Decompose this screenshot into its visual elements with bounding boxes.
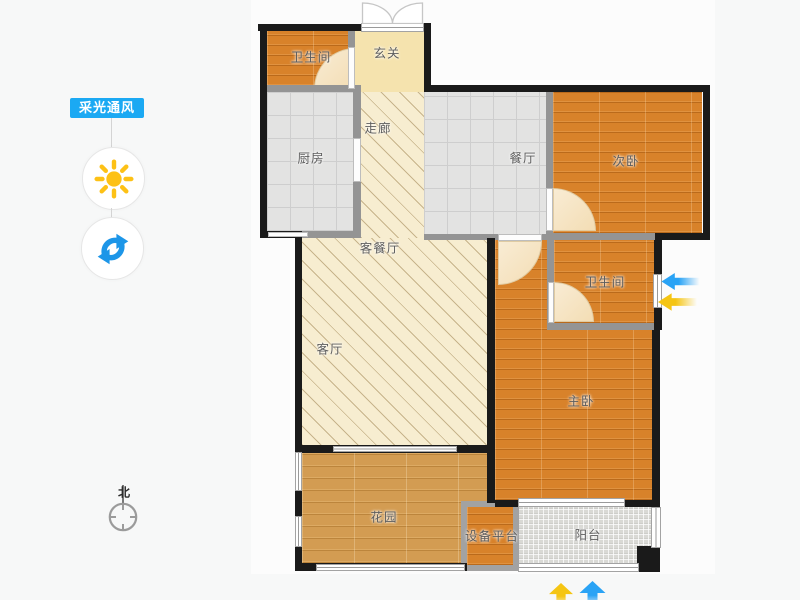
- room-label-kitchen: 厨房: [297, 148, 324, 167]
- wall-segment: [547, 323, 655, 330]
- compass-icon: [107, 501, 139, 533]
- rotate-button[interactable]: [81, 217, 144, 280]
- wind-arrow-blue-left: [661, 272, 700, 291]
- wall-segment: [487, 238, 495, 503]
- room-label-living: 客厅: [316, 339, 343, 358]
- window-garden-left: [295, 516, 302, 547]
- wall-segment: [260, 24, 267, 238]
- room-label-dining: 餐厅: [509, 148, 536, 167]
- room-label-entry: 玄关: [373, 43, 400, 62]
- wind-arrow-blue-up: [577, 581, 608, 600]
- wall-segment: [267, 85, 355, 92]
- sliding-door-kitchen: [353, 138, 361, 182]
- room-label-garden: 花园: [370, 507, 397, 526]
- window-balcony-bottom: [518, 563, 639, 572]
- wall-segment: [424, 85, 710, 92]
- window-kitchen-bottom: [268, 232, 308, 237]
- wind-arrow-yellow-up: [547, 583, 575, 600]
- window-living: [333, 446, 457, 452]
- wall-segment: [637, 546, 660, 572]
- wall-segment: [652, 330, 660, 507]
- daylight-button[interactable]: [82, 147, 145, 210]
- room-label-bath1: 卫生间: [291, 47, 332, 66]
- window-garden-bottom: [316, 564, 465, 571]
- connector-line: [111, 118, 112, 147]
- room-label-living-dining: 客餐厅: [360, 238, 401, 257]
- window-balcony-right: [651, 507, 661, 548]
- window-master: [518, 498, 625, 507]
- room-label-bath2: 卫生间: [585, 272, 626, 291]
- wall-segment: [624, 500, 653, 507]
- door-panel-bed2: [546, 188, 553, 231]
- door-panel-master: [498, 234, 542, 241]
- wall-segment: [258, 24, 361, 31]
- room-label-corridor: 走廊: [364, 118, 391, 137]
- compass-north-label: 北: [118, 484, 130, 501]
- sun-icon: [93, 158, 135, 200]
- window-garden-left: [295, 452, 302, 491]
- wall-segment: [424, 23, 431, 85]
- entry-threshold: [361, 23, 424, 32]
- wind-arrow-yellow-left: [658, 292, 697, 312]
- door-panel-bath2: [548, 282, 554, 323]
- room-floor-corridor: [361, 92, 424, 238]
- wall-segment: [703, 85, 710, 235]
- wall-segment: [495, 500, 519, 507]
- rotate-icon: [96, 232, 130, 266]
- wall-segment: [546, 233, 655, 240]
- room-label-bed2: 次卧: [612, 151, 639, 170]
- room-label-equipment: 设备平台: [465, 526, 519, 545]
- wall-segment: [655, 233, 710, 240]
- tool-tab-daylight-ventilation[interactable]: 采光通风: [70, 98, 144, 118]
- room-label-master: 主卧: [567, 391, 594, 410]
- floorplan-viewer: 采光通风: [0, 0, 800, 600]
- entry-double-door: [361, 0, 424, 24]
- room-label-balcony: 阳台: [574, 525, 601, 544]
- door-panel-bath1: [348, 47, 355, 89]
